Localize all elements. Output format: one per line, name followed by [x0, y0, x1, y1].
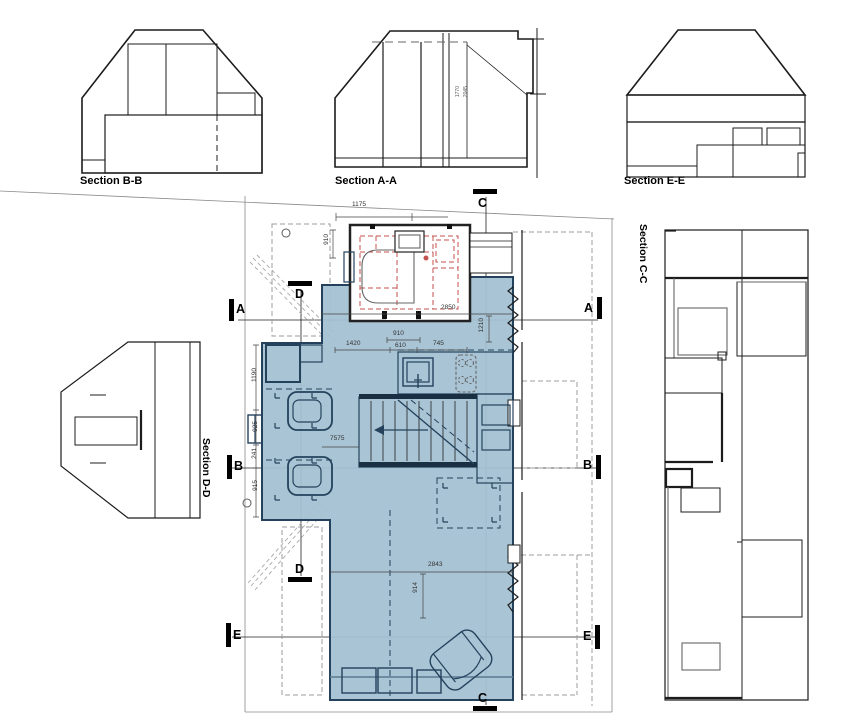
section-marker-d-bottom: D — [295, 563, 304, 576]
dimension-7575: 7575 — [330, 436, 344, 443]
section-marker-d-top-bar — [288, 281, 312, 286]
dimension-1190: 1190 — [252, 368, 259, 382]
dimension-915: 915 — [253, 480, 260, 491]
section-marker-b-right-bar — [596, 455, 601, 479]
dimension-1770-section-a: 1770 — [456, 86, 461, 97]
section-ee-label: Section E-E — [624, 175, 685, 187]
section-marker-e-left-bar — [226, 623, 231, 647]
dimension-2843: 2843 — [428, 562, 442, 569]
section-marker-c-top: C — [478, 197, 487, 210]
section-marker-e-right: E — [583, 630, 591, 643]
dimension-1420: 1420 — [346, 341, 360, 348]
section-marker-b-right: B — [583, 459, 592, 472]
extract-fan-symbol — [424, 256, 429, 261]
section-dd-label: Section D-D — [200, 438, 212, 498]
section-cc-label: Section C-C — [637, 224, 649, 284]
dimension-2850: 2850 — [441, 305, 455, 312]
section-marker-a-right: A — [584, 302, 593, 315]
section-marker-a-left: A — [236, 303, 245, 316]
dimension-241: 241 — [252, 448, 259, 459]
section-marker-a-left-bar — [229, 299, 234, 321]
section-marker-c-bottom: C — [478, 692, 487, 705]
section-marker-b-left-bar — [227, 455, 232, 479]
section-dd-drawing — [61, 342, 200, 518]
dimension-2045-section-a: 2045 — [464, 86, 469, 97]
apartment-floor-area — [262, 277, 513, 700]
dimension-610: 610 — [395, 343, 406, 350]
section-marker-d-bottom-bar — [288, 577, 312, 582]
section-marker-e-right-bar — [595, 625, 600, 649]
section-marker-d-top: D — [295, 288, 304, 301]
drawing-linework — [0, 0, 842, 722]
section-aa-label: Section A-A — [335, 175, 397, 187]
dimension-1210: 1210 — [479, 318, 486, 332]
dimension-925: 925 — [253, 421, 260, 432]
section-marker-c-bottom-bar — [473, 706, 497, 711]
section-ee-drawing — [627, 30, 805, 177]
section-marker-e-left: E — [233, 629, 241, 642]
section-marker-a-right-bar — [597, 297, 602, 319]
dimension-910-mid: 910 — [393, 331, 404, 338]
section-aa-drawing — [335, 28, 546, 178]
section-bb-label: Section B-B — [80, 175, 142, 187]
section-marker-b-left: B — [234, 460, 243, 473]
section-bb-drawing — [82, 30, 262, 173]
section-cc-drawing — [665, 230, 808, 700]
bathroom-door-opening — [386, 312, 416, 320]
dimension-745: 745 — [433, 341, 444, 348]
dimension-914: 914 — [413, 582, 420, 593]
architectural-drawing-sheet: Section B-B Section A-A Section E-E Sect… — [0, 0, 842, 722]
dimension-1175: 1175 — [352, 202, 366, 209]
dimension-910-left: 910 — [324, 234, 331, 245]
section-marker-c-top-bar — [473, 189, 497, 194]
